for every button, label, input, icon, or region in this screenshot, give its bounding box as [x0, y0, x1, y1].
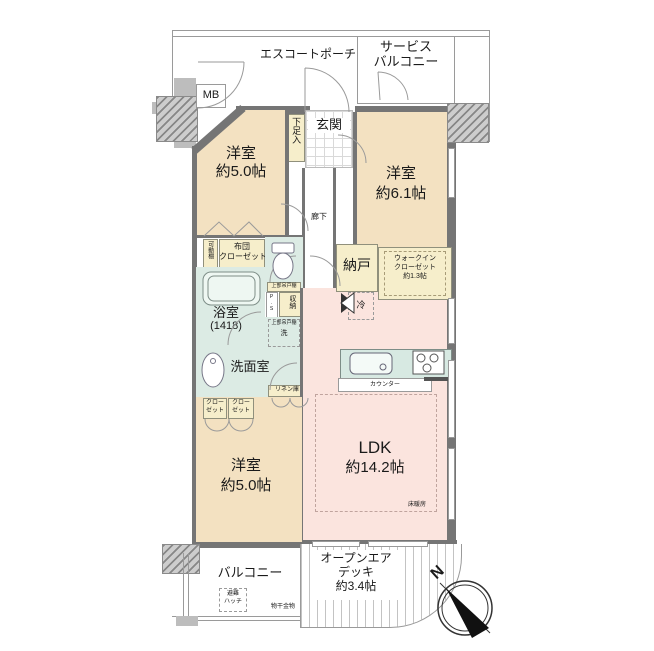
site-line-top-outer	[172, 30, 490, 31]
washer-label: 洗	[268, 330, 300, 338]
toilet-upper-cabinet-label: 上部吊戸棚	[267, 284, 301, 290]
kitchen-counter	[340, 349, 452, 379]
counter-label: カウンター	[338, 382, 432, 389]
bath-label: 浴室	[198, 306, 254, 321]
futon-closet-label-2: クローゼット	[219, 253, 265, 262]
wic-label-2: クローゼット	[384, 264, 446, 272]
washroom-label: 洗面室	[222, 360, 278, 375]
balcony-pillar-hatch	[162, 544, 200, 574]
wall-genkan-bedroom2	[353, 112, 357, 252]
bedroom-bottom-name: 洋室	[214, 458, 278, 475]
closet-b-label-1: クロー	[228, 400, 254, 407]
bedroom-top-left-size: 約5.0帖	[197, 164, 285, 181]
window-ldk-3	[448, 448, 455, 520]
escort-porch-label: エスコートポーチ	[260, 48, 356, 61]
pipe-space-label: P.S	[268, 294, 274, 312]
deck-label-2: デッキ	[314, 566, 398, 579]
hall-storage-label: 収納	[288, 295, 296, 309]
wic-label-3: 約1.3帖	[384, 273, 446, 281]
deck-label-3: 約3.4帖	[314, 580, 398, 593]
wall-bedroom1-genkan	[285, 112, 289, 237]
washer-upper-cabinet-label: 上部吊戸棚	[268, 321, 300, 327]
site-line-right	[489, 30, 490, 142]
kitchen-dark-strip	[424, 377, 448, 381]
common-wall-hatch-top-left	[156, 96, 198, 142]
genkan-label: 玄関	[308, 118, 350, 133]
bedroom-top-right-name: 洋室	[371, 166, 431, 183]
window-ldk-2	[448, 360, 455, 438]
ldk-size-label: 約14.2帖	[333, 460, 417, 477]
wic-label-1: ウォークイン	[384, 255, 446, 263]
corridor-label: 廊下	[306, 213, 332, 222]
escape-hatch-label-2: ハッチ	[219, 599, 247, 606]
window-ldk-1	[448, 298, 455, 344]
window-bedroom2	[448, 148, 455, 198]
bedroom-bottom-size: 約5.0帖	[204, 478, 288, 495]
ldk-label: LDK	[345, 438, 405, 457]
floor-heating-label: 床暖房	[400, 502, 434, 509]
balcony-rail-left-1	[183, 553, 184, 617]
common-wall-hatch-top-right	[447, 103, 489, 143]
nando-label: 納戸	[336, 258, 378, 274]
closet-b-label-2: ゼット	[228, 408, 254, 415]
balcony-rail-left-2	[188, 553, 189, 617]
bedroom-top-right-size: 約6.1帖	[359, 186, 443, 203]
service-balcony-label-2: バルコニー	[364, 55, 448, 70]
futon-closet-label-1: 布団	[219, 243, 265, 252]
laundry-bracket-label: 物干金物	[264, 604, 302, 611]
shoe-box-label: 下足入	[291, 117, 301, 144]
floor-plan: エスコートポーチ サービス バルコニー MB 洋室 約5.0帖 下足入 玄関 廊…	[0, 0, 654, 651]
bath-size-label: (1418)	[198, 320, 254, 332]
service-balcony-label-1: サービス	[364, 40, 448, 55]
closet-a-label-1: クロー	[203, 400, 227, 407]
escape-hatch-label-1: 避難	[219, 591, 247, 598]
closet-a-label-2: ゼット	[203, 408, 227, 415]
balcony-foot-block	[176, 616, 198, 626]
movable-shelf-label: 可動棚	[206, 241, 213, 259]
mb-label: MB	[196, 89, 226, 101]
deck-label-1: オープンエア	[314, 552, 398, 565]
fridge-label: 冷	[348, 300, 374, 310]
window-deck-2	[368, 541, 428, 547]
bedroom-top-left-name: 洋室	[201, 146, 281, 163]
window-deck-1	[312, 541, 360, 547]
balcony-label: バルコニー	[210, 566, 290, 581]
